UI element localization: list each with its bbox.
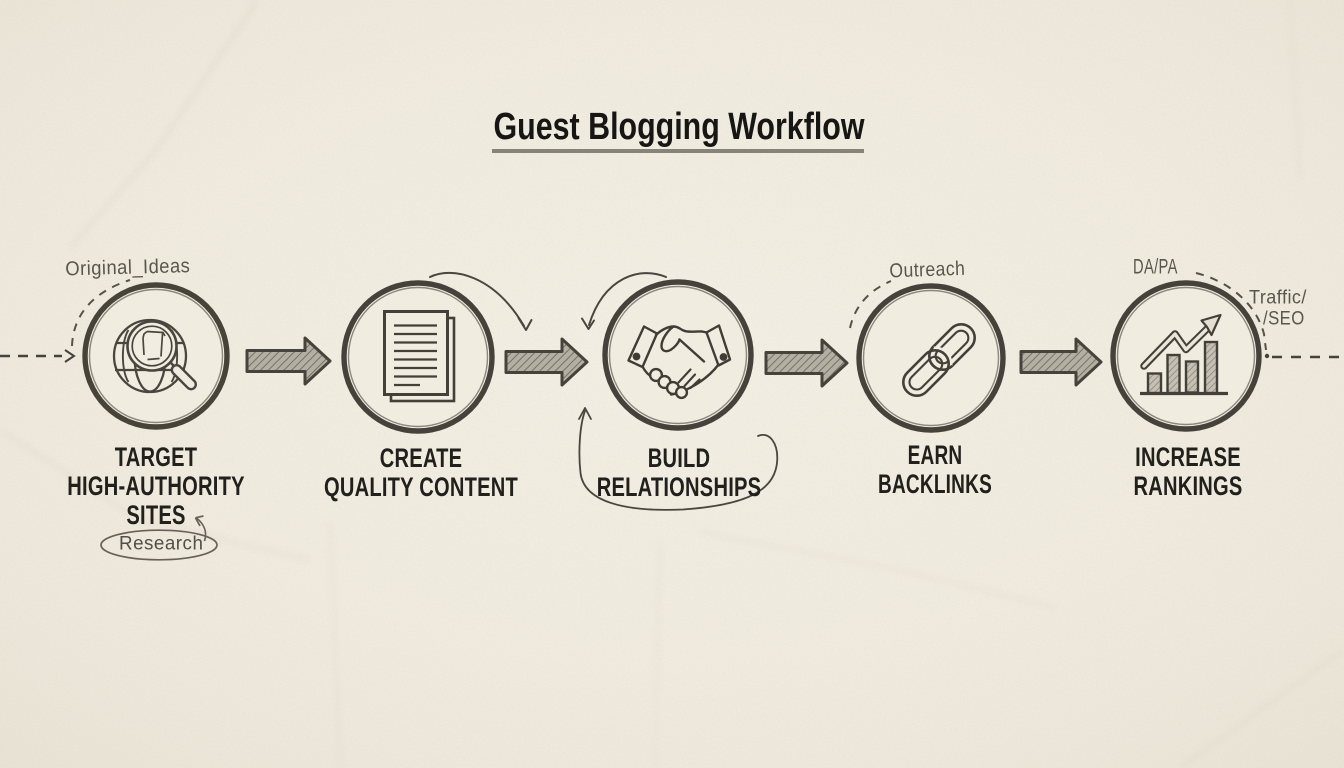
- svg-text:Research: Research: [119, 533, 203, 554]
- svg-text:Original_Ideas: Original_Ideas: [65, 255, 191, 280]
- svg-text:DA/PA: DA/PA: [1133, 255, 1178, 278]
- svg-text:/SEO: /SEO: [1263, 308, 1305, 329]
- svg-text:Outreach: Outreach: [889, 257, 966, 282]
- svg-text:Traffic/: Traffic/: [1249, 286, 1307, 308]
